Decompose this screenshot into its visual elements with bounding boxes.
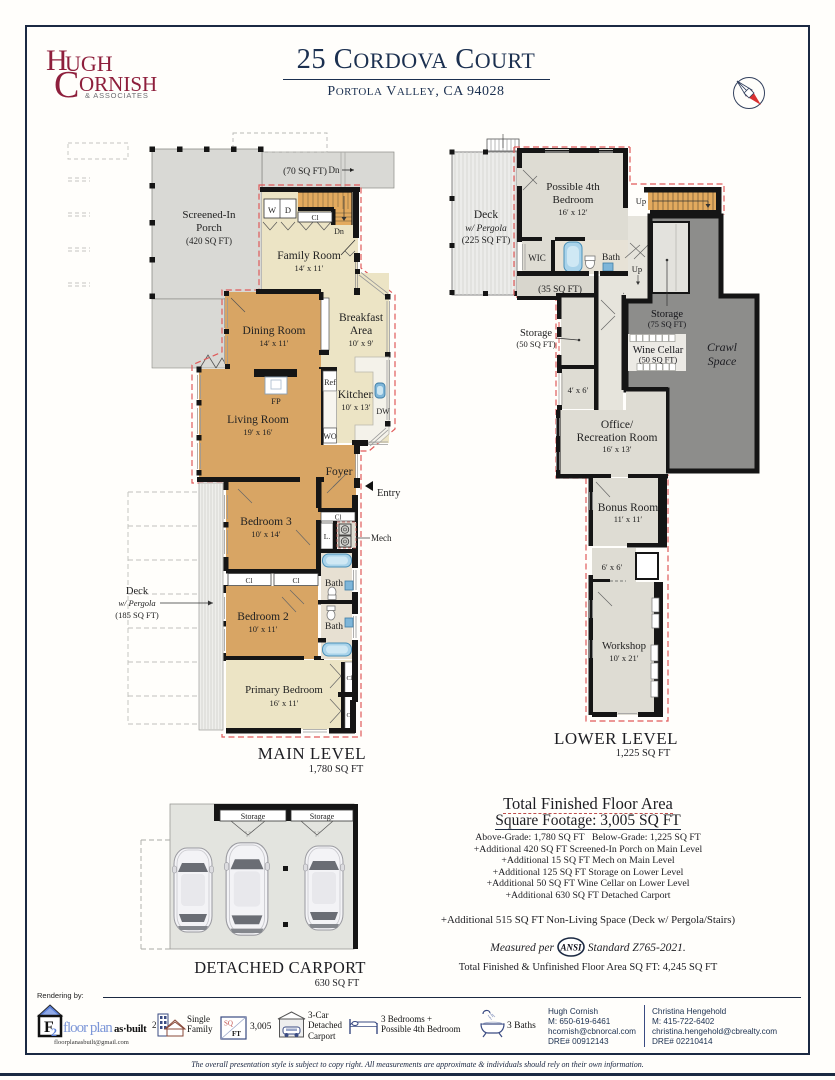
svg-text:Area: Area [350, 325, 372, 337]
svg-text:Storage: Storage [651, 309, 683, 320]
svg-text:(50 SQ FT): (50 SQ FT) [639, 356, 677, 365]
svg-text:FP: FP [271, 396, 281, 406]
svg-text:16′ x 12′: 16′ x 12′ [558, 207, 587, 217]
svg-text:MAIN LEVEL: MAIN LEVEL [258, 744, 366, 763]
svg-text:10′ x 21′: 10′ x 21′ [609, 653, 638, 663]
svg-text:Living Room: Living Room [227, 414, 289, 426]
svg-text:Foyer: Foyer [326, 466, 353, 478]
svg-text:Cl: Cl [245, 576, 252, 585]
svg-text:Primary Bedroom: Primary Bedroom [245, 684, 323, 696]
svg-text:Deck: Deck [126, 586, 149, 597]
svg-text:L.: L. [324, 532, 331, 541]
svg-text:(420 SQ FT): (420 SQ FT) [186, 236, 232, 246]
svg-text:10′ x 13′: 10′ x 13′ [341, 402, 370, 412]
svg-text:Deck: Deck [474, 209, 499, 221]
svg-text:Bonus Room: Bonus Room [598, 502, 658, 514]
svg-text:Dn: Dn [334, 227, 344, 236]
svg-text:1,780 SQ FT: 1,780 SQ FT [309, 764, 364, 775]
svg-text:FT: FT [232, 1030, 241, 1038]
svg-text:Storage: Storage [241, 812, 266, 821]
svg-text:DETACHED CARPORT: DETACHED CARPORT [194, 958, 366, 977]
svg-text:w/ Pergola: w/ Pergola [465, 224, 507, 234]
svg-text:Breakfast: Breakfast [339, 312, 384, 324]
svg-text:1,225 SQ FT: 1,225 SQ FT [616, 748, 671, 759]
svg-text:Wine Cellar: Wine Cellar [633, 345, 684, 356]
svg-text:Bedroom 3: Bedroom 3 [240, 516, 292, 528]
svg-text:16′ x 13′: 16′ x 13′ [602, 444, 631, 454]
svg-text:Space: Space [708, 354, 737, 368]
svg-text:floorplanasbuilt@gmail.com: floorplanasbuilt@gmail.com [54, 1039, 129, 1046]
svg-text:Recreation Room: Recreation Room [577, 432, 658, 444]
svg-text:Dining Room: Dining Room [243, 325, 306, 337]
svg-text:Dn: Dn [329, 165, 340, 175]
svg-text:Kitchen: Kitchen [338, 389, 375, 401]
svg-text:16′ x 11′: 16′ x 11′ [270, 698, 299, 708]
svg-text:4′ x 6′: 4′ x 6′ [568, 385, 589, 395]
svg-text:19′ x 16′: 19′ x 16′ [243, 427, 272, 437]
svg-text:Workshop: Workshop [602, 640, 646, 652]
svg-text:10′ x 9′: 10′ x 9′ [349, 338, 374, 348]
svg-text:11′ x 11′: 11′ x 11′ [614, 514, 643, 524]
svg-text:w/ Pergola: w/ Pergola [118, 598, 155, 608]
svg-text:Storage: Storage [310, 812, 335, 821]
svg-text:Cl: Cl [335, 514, 342, 522]
svg-text:WO: WO [323, 432, 337, 441]
svg-text:Cl: Cl [292, 576, 299, 585]
svg-text:10′ x 14′: 10′ x 14′ [251, 529, 280, 539]
svg-text:(225 SQ FT): (225 SQ FT) [462, 235, 511, 246]
svg-text:2: 2 [152, 1020, 157, 1030]
svg-text:630 SQ FT: 630 SQ FT [315, 978, 359, 989]
svg-text:6′ x 6′: 6′ x 6′ [602, 562, 623, 572]
svg-text:Bath: Bath [325, 622, 343, 632]
svg-text:as·built: as·built [114, 1023, 147, 1035]
svg-text:Up: Up [636, 196, 646, 206]
svg-text:Bedroom: Bedroom [553, 194, 594, 206]
svg-text:2: 2 [51, 1025, 57, 1039]
svg-text:Ref: Ref [324, 378, 336, 387]
svg-text:Storage: Storage [520, 328, 552, 339]
svg-text:Entry: Entry [377, 488, 401, 499]
svg-text:floor plan: floor plan [63, 1020, 113, 1036]
svg-text:(185 SQ FT): (185 SQ FT) [115, 610, 159, 620]
svg-text:Porch: Porch [196, 222, 222, 234]
svg-text:10′ x 11′: 10′ x 11′ [249, 624, 278, 634]
svg-text:Screened-In: Screened-In [182, 209, 236, 221]
svg-text:SQ: SQ [224, 1020, 233, 1028]
svg-text:Bedroom 2: Bedroom 2 [237, 611, 289, 623]
svg-text:ANSI: ANSI [559, 943, 582, 953]
svg-text:14′ x 11′: 14′ x 11′ [295, 263, 324, 273]
svg-text:14′ x 11′: 14′ x 11′ [260, 338, 289, 348]
svg-text:Crawl: Crawl [707, 340, 738, 354]
svg-text:Bath: Bath [602, 253, 620, 263]
svg-text:W: W [268, 205, 276, 215]
svg-text:(50 SQ FT): (50 SQ FT) [516, 339, 555, 349]
svg-text:Family Room: Family Room [277, 250, 341, 262]
svg-text:WIC: WIC [528, 253, 546, 263]
svg-text:(75 SQ FT): (75 SQ FT) [648, 320, 686, 329]
svg-text:Cl: Cl [347, 675, 353, 682]
svg-text:D: D [285, 205, 291, 215]
svg-text:LOWER LEVEL: LOWER LEVEL [554, 729, 678, 748]
svg-text:Mech: Mech [371, 533, 392, 543]
svg-text:Cl: Cl [311, 213, 318, 222]
svg-text:Possible 4th: Possible 4th [546, 181, 600, 193]
svg-text:DW: DW [376, 407, 390, 416]
svg-text:Up: Up [632, 264, 642, 274]
svg-text:(70 SQ FT): (70 SQ FT) [283, 166, 327, 177]
svg-text:Office/: Office/ [601, 419, 634, 431]
